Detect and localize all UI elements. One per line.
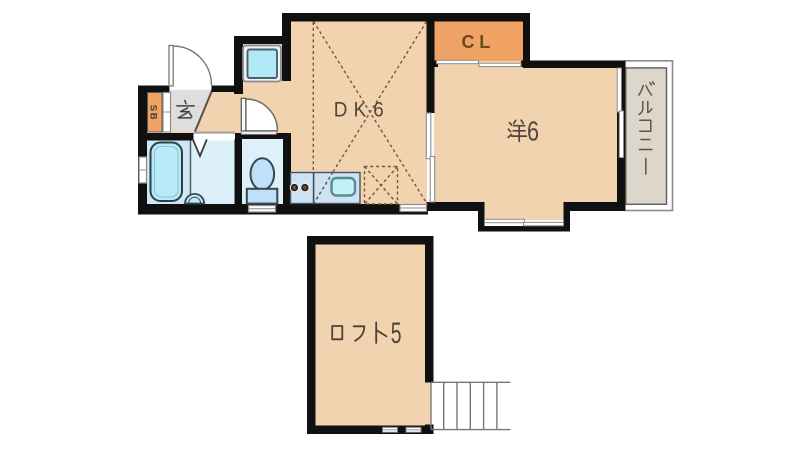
svg-text:6: 6 bbox=[527, 117, 539, 147]
svg-text:K: K bbox=[354, 98, 367, 121]
svg-text:5: 5 bbox=[391, 317, 402, 350]
svg-text:SB: SB bbox=[148, 105, 159, 121]
svg-text:CL: CL bbox=[462, 32, 496, 52]
svg-text:6: 6 bbox=[373, 98, 384, 121]
svg-text:D: D bbox=[334, 98, 348, 121]
